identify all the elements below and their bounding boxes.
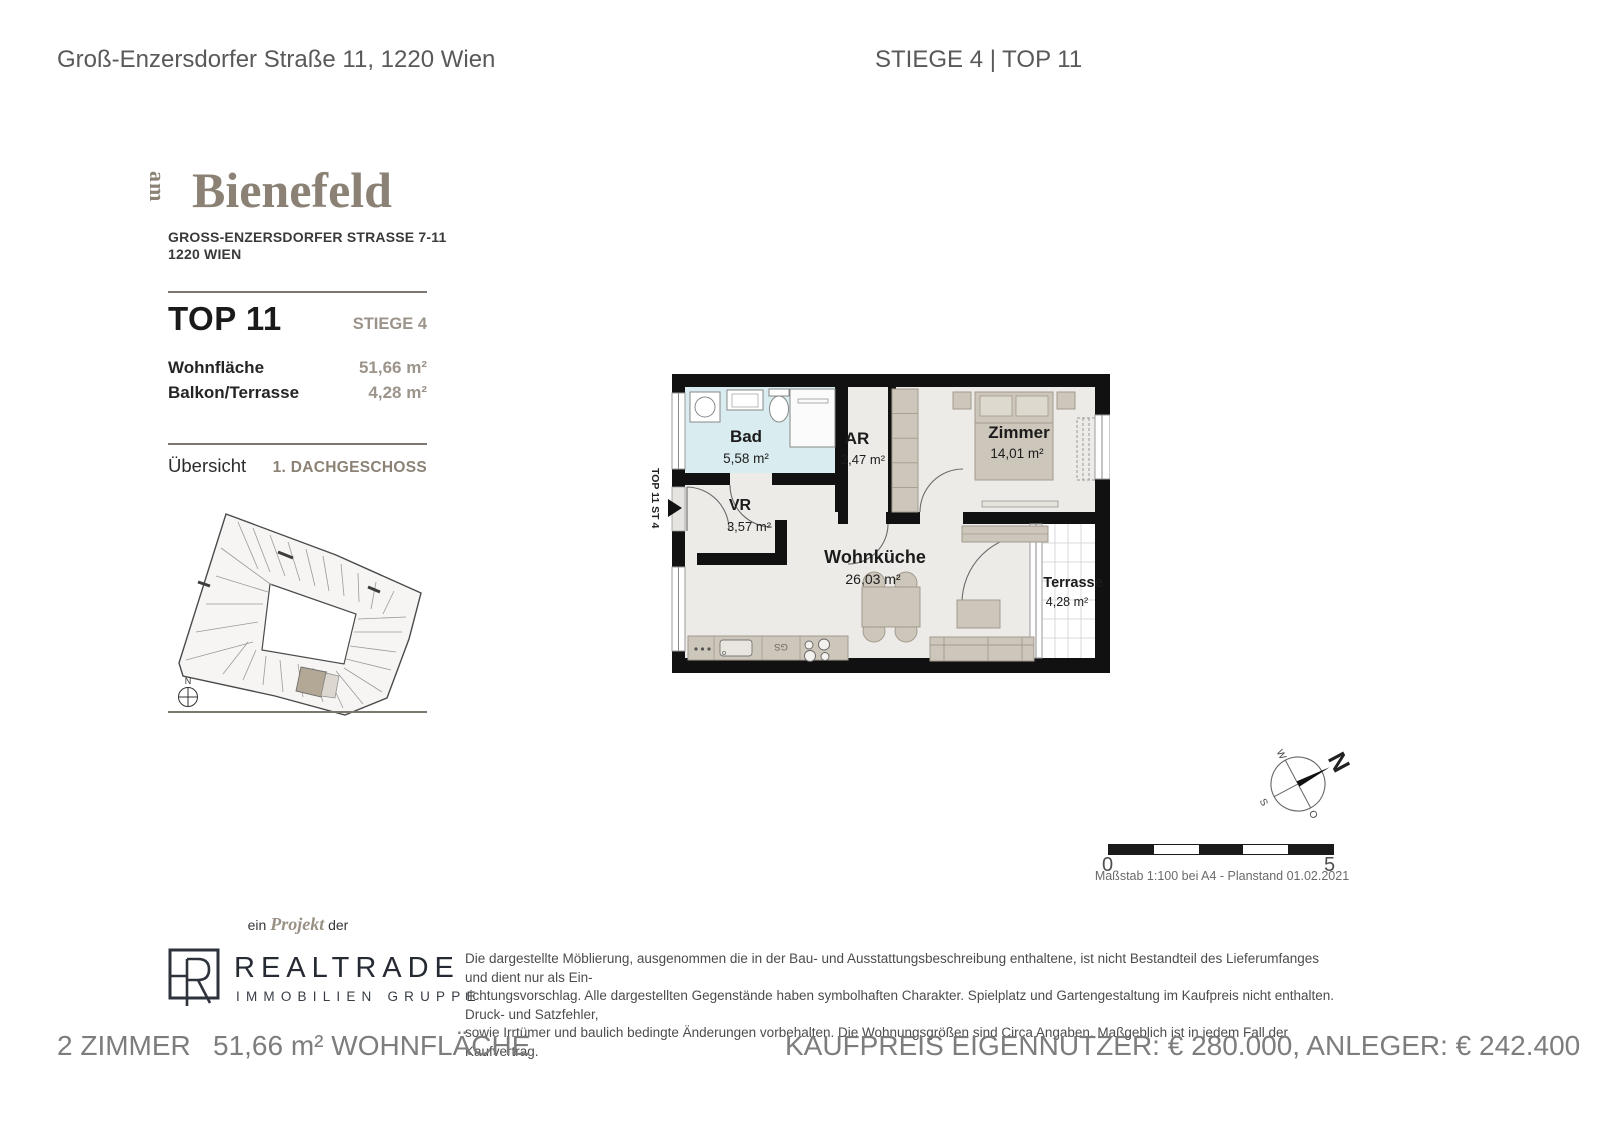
floor-plan: TOP 11 ST 4 <box>630 365 1110 675</box>
compass-o: O <box>1306 809 1319 821</box>
brand-logo-prefix: am <box>144 171 170 202</box>
kitchen-sink-icon <box>720 640 752 656</box>
room-name-terrasse: Terrasse <box>1043 575 1102 591</box>
scale-caption: Maßstab 1:100 bei A4 - Planstand 01.02.2… <box>1000 869 1444 883</box>
tagline-post: der <box>328 917 348 933</box>
divider-mid <box>168 443 427 445</box>
unit-stiege: STIEGE 4 <box>168 315 427 334</box>
floor-terrace <box>1042 524 1095 658</box>
coffee-table-icon <box>957 600 1000 628</box>
brand-address-line1: GROSS-ENZERSDORFER STRASSE 7-11 <box>168 229 446 246</box>
tv-icon <box>982 501 1058 507</box>
tagline-project: Projekt <box>270 914 324 934</box>
divider-bottom <box>168 711 427 713</box>
nightstand-left-icon <box>953 392 971 409</box>
publisher-name: REALTRADE <box>234 952 460 985</box>
room-area-wohnkueche: 26,03 m² <box>845 571 901 587</box>
disclaimer-line2: richtungsvorschlag. Alle dargestellten G… <box>465 987 1345 1024</box>
overview-floor: 1. DACHGESCHOSS <box>168 459 427 477</box>
room-area-bad: 5,58 m² <box>723 451 769 466</box>
footer-rooms: 2 ZIMMER <box>57 1030 191 1062</box>
footer-price: KAUFPREIS EIGENNUTZER: € 280.000, ANLEGE… <box>785 1030 1580 1062</box>
footer-area: 51,66 m² WOHNFLÄCHE <box>213 1030 530 1062</box>
publisher-subtitle: IMMOBILIEN GRUPPE <box>236 989 482 1004</box>
room-name-zimmer: Zimmer <box>988 423 1050 442</box>
row-value-balkon: 4,28 m² <box>168 383 427 403</box>
room-area-ar: 2,47 m² <box>841 452 886 467</box>
wardrobe-column <box>892 389 918 512</box>
header-address: Groß-Enzersdorfer Straße 11, 1220 Wien <box>57 46 495 74</box>
header-unit-ref: STIEGE 4 | TOP 11 <box>875 46 1082 74</box>
scale-bar <box>1108 844 1334 855</box>
row-value-wohnflaeche: 51,66 m² <box>168 358 427 378</box>
compass-icon: N W S O <box>1248 730 1352 834</box>
compass-n: N <box>1322 748 1352 777</box>
site-plan: N <box>158 492 430 720</box>
room-area-terrasse: 4,28 m² <box>1046 595 1088 609</box>
disclaimer-line1: Die dargestellte Möblierung, ausgenommen… <box>465 950 1345 987</box>
expose-page: Groß-Enzersdorfer Straße 11, 1220 Wien S… <box>0 0 1600 1131</box>
room-area-zimmer: 14,01 m² <box>990 446 1044 461</box>
realtrade-logo-icon <box>168 948 226 1008</box>
compass-s: S <box>1257 797 1270 808</box>
site-plan-north-label: N <box>185 676 192 686</box>
brand-logo-name: Bienefeld <box>192 165 392 215</box>
nightstand-right-icon <box>1057 392 1075 409</box>
dining-table-icon <box>862 587 920 627</box>
room-name-wohnkueche: Wohnküche <box>824 547 926 567</box>
room-name-vr: VR <box>729 497 752 514</box>
divider-top <box>168 291 427 293</box>
room-name-ar: AR <box>845 429 870 448</box>
sofa-icon <box>930 637 1034 661</box>
room-area-vr: 3,57 m² <box>727 519 772 534</box>
tagline-pre: ein <box>248 917 267 933</box>
brand-address-line2: 1220 WIEN <box>168 246 446 263</box>
shower-icon <box>790 389 835 447</box>
dishwasher-label: GS <box>774 641 788 652</box>
publisher-tagline: ein Projekt der <box>168 914 428 935</box>
site-plan-north-symbol: N <box>179 676 198 707</box>
kitchen-counter: GS <box>688 636 848 662</box>
entrance-label: TOP 11 ST 4 <box>649 468 661 528</box>
toilet-icon <box>769 389 789 396</box>
room-name-bad: Bad <box>730 427 762 446</box>
brand-address: GROSS-ENZERSDORFER STRASSE 7-11 1220 WIE… <box>168 229 446 263</box>
